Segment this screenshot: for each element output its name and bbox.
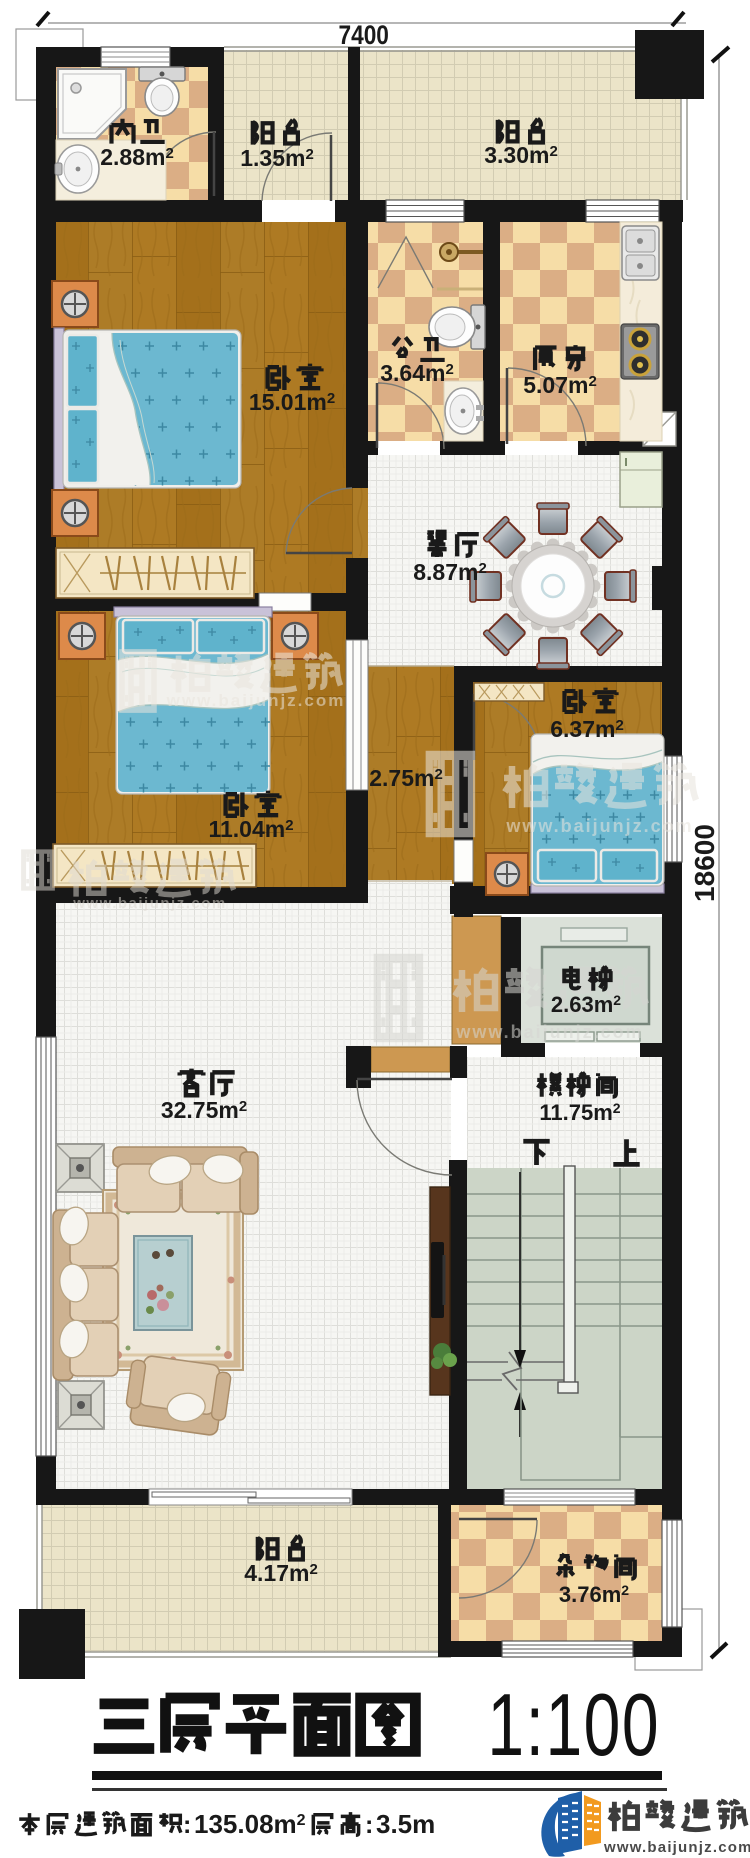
svg-text::: : [183, 1811, 191, 1839]
svg-text:3.30m2: 3.30m2 [484, 142, 558, 168]
svg-text:2.63m2: 2.63m2 [551, 992, 621, 1017]
svg-text:3.76m2: 3.76m2 [559, 1582, 629, 1607]
svg-text:2.88m2: 2.88m2 [100, 144, 174, 170]
svg-text:7400: 7400 [338, 20, 388, 50]
svg-text:8.87m2: 8.87m2 [413, 559, 487, 585]
svg-text:1:100: 1:100 [487, 1677, 660, 1774]
svg-text:www.baijunjz.com: www.baijunjz.com [455, 1022, 643, 1042]
svg-text::: : [365, 1811, 373, 1839]
svg-text:11.75m2: 11.75m2 [539, 1100, 620, 1125]
svg-text:1.35m2: 1.35m2 [240, 145, 314, 171]
svg-text:5.07m2: 5.07m2 [523, 372, 597, 398]
svg-text:4.17m2: 4.17m2 [244, 1560, 318, 1586]
svg-text:www.baijunjz.com: www.baijunjz.com [166, 691, 346, 710]
svg-text:32.75m2: 32.75m2 [161, 1097, 247, 1123]
svg-text:11.04m2: 11.04m2 [208, 816, 293, 842]
svg-text:15.01m2: 15.01m2 [249, 389, 335, 415]
svg-text:www.baijunjz.com: www.baijunjz.com [72, 895, 226, 912]
svg-text:www.baijunjz.com: www.baijunjz.com [603, 1839, 750, 1856]
svg-text:6.37m2: 6.37m2 [550, 716, 624, 742]
svg-text:3.64m2: 3.64m2 [380, 360, 454, 386]
svg-text:3.5m: 3.5m [376, 1809, 435, 1839]
svg-text:2.75m2: 2.75m2 [369, 765, 443, 791]
svg-text:135.08m2: 135.08m2 [194, 1809, 306, 1839]
svg-text:www.baijunjz.com: www.baijunjz.com [505, 816, 693, 836]
